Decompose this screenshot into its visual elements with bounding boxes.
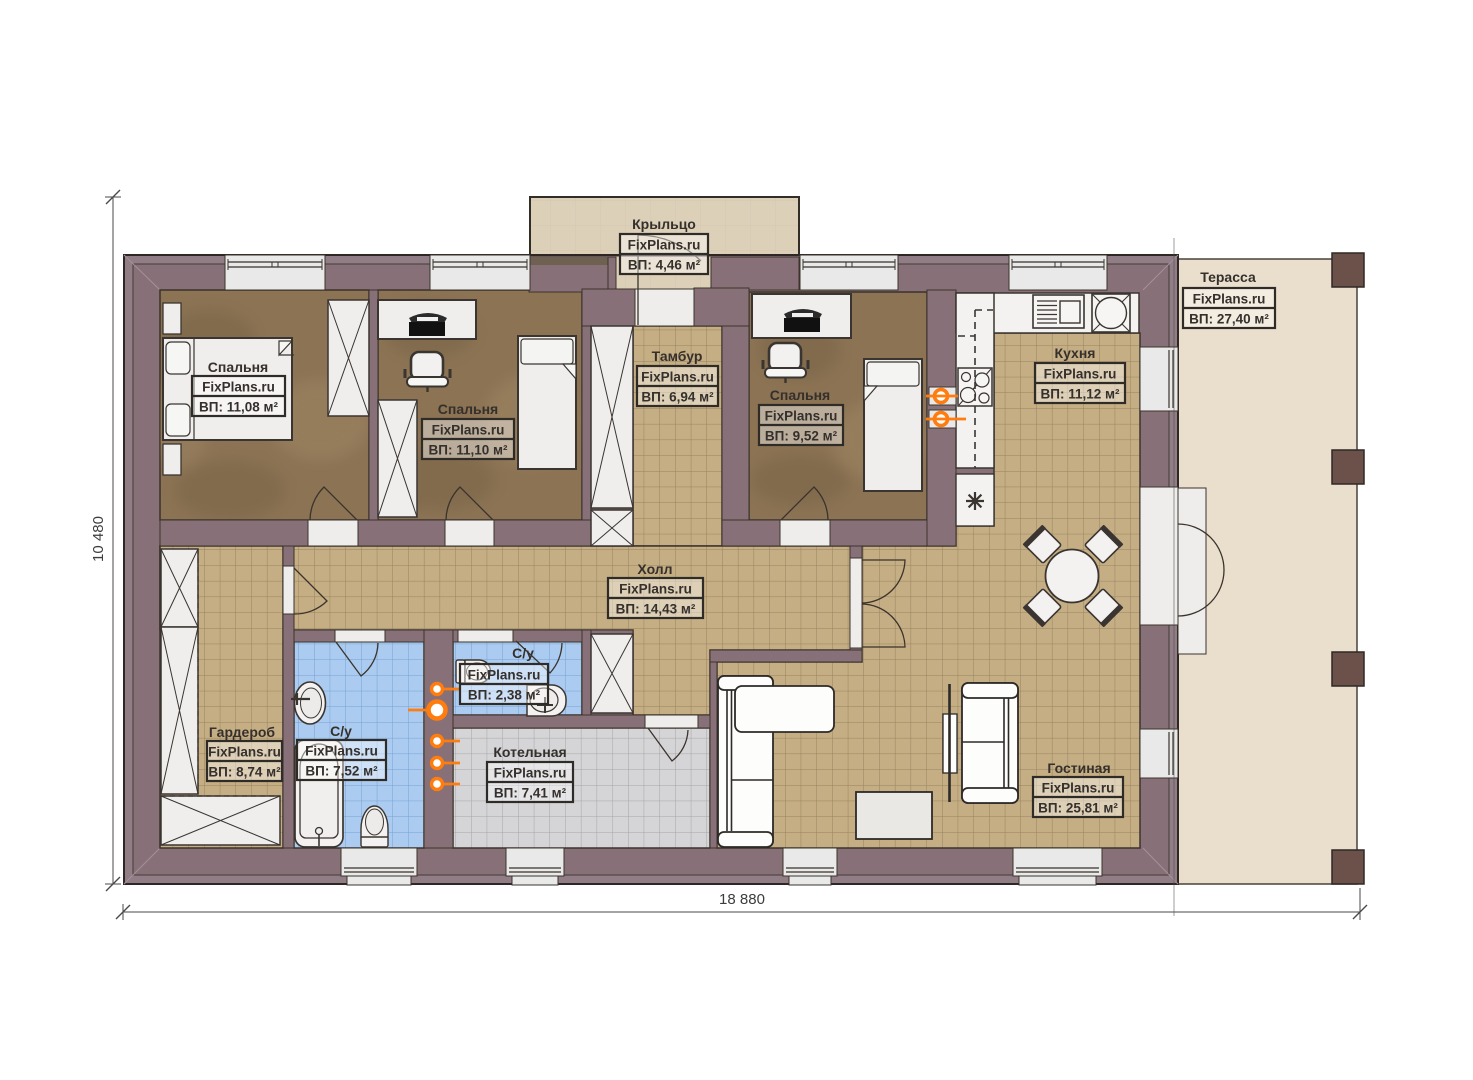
svg-text:FixPlans.ru: FixPlans.ru [641,370,714,385]
svg-text:Спальня: Спальня [208,359,268,375]
svg-text:ВП: 9,52 м²: ВП: 9,52 м² [765,429,838,444]
svg-text:FixPlans.ru: FixPlans.ru [208,745,281,760]
svg-text:ВП: 11,12 м²: ВП: 11,12 м² [1041,387,1120,402]
svg-text:ВП: 14,43 м²: ВП: 14,43 м² [616,602,696,617]
svg-text:FixPlans.ru: FixPlans.ru [305,744,378,759]
svg-text:ВП: 2,38 м²: ВП: 2,38 м² [468,688,541,703]
svg-text:10 480: 10 480 [90,516,107,562]
svg-text:С/у: С/у [512,645,534,661]
svg-text:ВП: 27,40 м²: ВП: 27,40 м² [1189,312,1269,327]
svg-text:ВП: 11,10 м²: ВП: 11,10 м² [429,443,508,458]
svg-text:ВП: 7,41 м²: ВП: 7,41 м² [494,786,567,801]
svg-text:Спальня: Спальня [438,401,498,417]
svg-text:FixPlans.ru: FixPlans.ru [432,423,505,438]
svg-text:ВП: 7,52 м²: ВП: 7,52 м² [305,764,378,779]
svg-text:18 880: 18 880 [719,891,765,908]
svg-text:Гардероб: Гардероб [209,724,276,740]
svg-text:Тамбур: Тамбур [652,348,703,364]
svg-text:FixPlans.ru: FixPlans.ru [202,380,275,395]
svg-text:FixPlans.ru: FixPlans.ru [1042,781,1115,796]
svg-text:Крыльцо: Крыльцо [632,216,696,232]
svg-text:FixPlans.ru: FixPlans.ru [1193,292,1266,307]
svg-text:FixPlans.ru: FixPlans.ru [619,582,692,597]
svg-text:Холл: Холл [637,561,672,577]
svg-text:Спальня: Спальня [770,387,830,403]
svg-text:ВП: 6,94 м²: ВП: 6,94 м² [641,390,714,405]
svg-text:FixPlans.ru: FixPlans.ru [494,766,567,781]
svg-text:Кухня: Кухня [1055,345,1096,361]
svg-text:Котельная: Котельная [493,744,566,760]
svg-text:ВП: 4,46 м²: ВП: 4,46 м² [628,258,701,273]
svg-text:ВП: 25,81 м²: ВП: 25,81 м² [1038,801,1118,816]
svg-text:Гостиная: Гостиная [1047,760,1110,776]
svg-text:FixPlans.ru: FixPlans.ru [468,668,541,683]
svg-text:С/у: С/у [330,723,352,739]
svg-text:ВП: 8,74 м²: ВП: 8,74 м² [208,765,281,780]
svg-text:Терасса: Терасса [1200,269,1256,285]
svg-text:FixPlans.ru: FixPlans.ru [628,238,701,253]
svg-text:FixPlans.ru: FixPlans.ru [1044,367,1117,382]
svg-text:FixPlans.ru: FixPlans.ru [765,409,838,424]
svg-text:ВП: 11,08 м²: ВП: 11,08 м² [199,400,278,415]
